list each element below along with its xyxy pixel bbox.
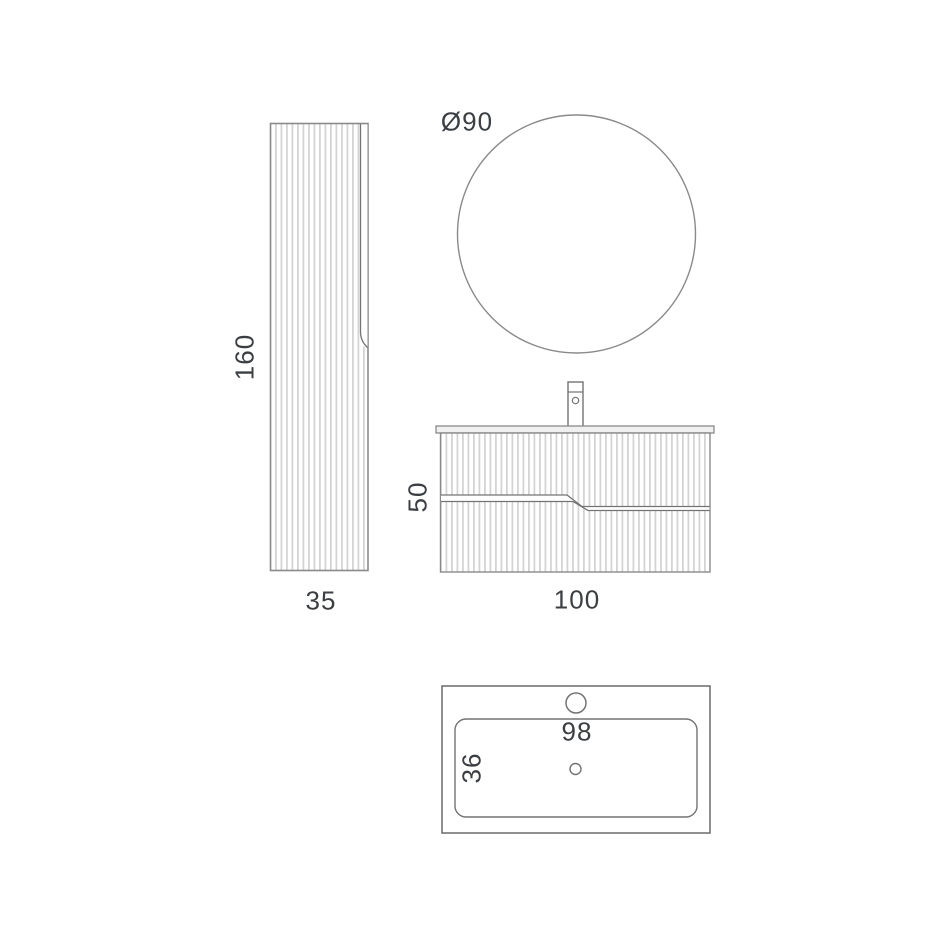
dimension-label-mirror-diameter: Ø90 [441,107,493,138]
vanity-view [436,382,714,572]
basin-faucet-hole [566,693,586,713]
vanity-countertop [436,426,714,433]
tall-cabinet-view [271,124,369,571]
dimension-label-cabinet-width: 35 [306,586,337,617]
technical-drawing-canvas: Ø90 160 35 50 100 98 36 [0,0,950,950]
faucet-hole-dot [572,397,578,403]
faucet-icon [568,382,583,427]
basin-overflow-hole [570,764,581,775]
dimension-label-basin-width: 98 [562,717,593,748]
mirror-circle [458,115,696,353]
tall-cabinet-door-reveal [361,125,368,347]
dimension-label-cabinet-height: 160 [230,334,261,380]
dimension-label-vanity-height: 50 [403,482,434,513]
furniture-dimension-drawing [0,0,950,950]
dimension-label-basin-depth: 36 [457,753,488,784]
tall-cabinet-body [271,124,369,571]
dimension-label-vanity-width: 100 [554,585,600,616]
